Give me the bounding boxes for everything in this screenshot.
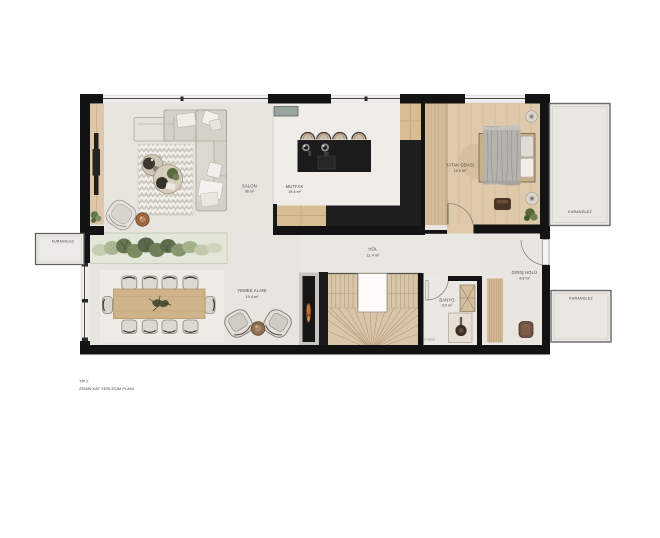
svg-text:4.8 m²: 4.8 m² [519,277,530,281]
svg-text:36 m²: 36 m² [245,190,255,194]
svg-text:KURANGLEZ: KURANGLEZ [568,210,592,214]
svg-text:TİP 2: TİP 2 [79,379,89,384]
svg-text:3.9 m²: 3.9 m² [442,304,453,308]
svg-text:11.4 m²: 11.4 m² [367,254,380,258]
svg-text:HOL: HOL [368,247,378,252]
svg-text:GİRİŞ HOLÜ: GİRİŞ HOLÜ [512,270,538,275]
svg-text:19.4 m²: 19.4 m² [246,295,260,299]
svg-text:19.6 m²: 19.6 m² [288,190,302,194]
svg-text:MUTFAK: MUTFAK [286,184,304,189]
svg-text:15.5 m²: 15.5 m² [454,169,468,173]
svg-text:BANYO: BANYO [439,298,454,303]
svg-text:YEMEK ALANI: YEMEK ALANI [237,288,266,293]
svg-text:SALON: SALON [242,184,257,189]
svg-text:KURANGLEZ: KURANGLEZ [52,240,75,244]
svg-text:YATAK ODASI: YATAK ODASI [446,163,475,168]
svg-text:ZEMİN KAT YERLEŞİM PLANI: ZEMİN KAT YERLEŞİM PLANI [79,386,134,391]
svg-text:KURANGLEZ: KURANGLEZ [569,297,593,301]
